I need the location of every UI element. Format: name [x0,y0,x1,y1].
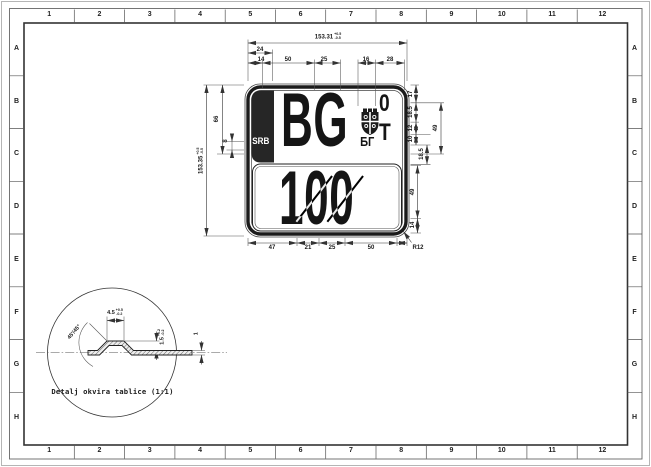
grid-col-label-bottom: 3 [142,447,158,454]
dim-bottom-47: 47 [264,245,280,251]
grid-col-label-bottom: 10 [494,447,510,454]
grid-row-label-right: B [627,98,643,105]
dim-overall-height-tolerance: +0.5-0.5 [197,148,205,155]
dim-right-18-5-a: 18.5 [408,104,414,120]
grid-col-label-top: 11 [544,11,560,18]
dim-right-14: 14 [410,219,416,231]
grid-col-label-top: 9 [443,11,459,18]
detail-view [36,288,227,417]
dim-top-25: 25 [316,57,332,63]
drawing-sheet: BG 100 0 T БГ SRB 153.31+0.5-0.5 24 14 5… [0,0,651,467]
grid-row-label-right: A [627,45,643,52]
detail-caption: Detalj okvira tablice (1:1) [32,387,193,396]
plate-serial-letter: T [379,124,391,142]
dim-left-8: 8 [223,136,229,146]
dim-flat-width-value: 4.5 [107,310,115,316]
dim-bottom-25: 25 [324,245,340,251]
grid-col-label-top: 3 [142,11,158,18]
dim-top-50: 50 [280,57,296,63]
dim-overall-height: 153.35+0.5-0.5 [197,144,205,178]
dim-bottom-21: 21 [300,245,316,251]
country-code-label: SRB [251,137,271,146]
grid-row-label-left: C [9,150,25,157]
grid-col-label-bottom: 7 [343,447,359,454]
dim-right-10: 10 [408,133,414,145]
dim-right-49-a: 49 [433,122,439,134]
tol-dn: -0.5 [334,37,341,41]
plate-code-letters: BG [281,93,348,149]
dim-flat-width-tolerance: +0.5-0.2 [116,309,123,317]
grid-row-label-left: G [9,361,25,368]
dim-top-16: 16 [358,57,374,63]
grid-col-label-top: 4 [192,11,208,18]
dim-top-24: 24 [252,47,268,53]
grid-row-label-left: A [9,45,25,52]
grid-col-label-bottom: 6 [293,447,309,454]
grid-row-label-left: B [9,98,25,105]
grid-col-label-top: 2 [91,11,107,18]
dim-overall-width-tolerance: +0.5-0.5 [334,33,341,41]
grid-col-label-top: 12 [594,11,610,18]
dim-overall-width-value: 153.31 [315,34,333,40]
tol-dn: -0.2 [162,329,166,336]
serbian-shield-icon [362,109,379,136]
grid-row-label-right: H [627,414,643,421]
grid-row-label-right: C [627,150,643,157]
dim-rib-height-tolerance: +0.2-0.2 [158,329,166,336]
radius-leader [404,232,412,243]
grid-row-label-right: D [627,203,643,210]
dim-top-14: 14 [253,57,269,63]
grid-col-label-top: 7 [343,11,359,18]
grid-col-label-bottom: 4 [192,447,208,454]
grid-row-label-right: F [627,309,643,316]
dim-right-49-b: 49 [410,186,416,198]
dim-overall-width: 153.31+0.5-0.5 [311,33,345,41]
grid-row-label-left: F [9,309,25,316]
grid-col-label-bottom: 8 [393,447,409,454]
dim-left-66: 66 [214,112,220,126]
dim-right-17: 17 [408,88,414,100]
grid-col-label-bottom: 12 [594,447,610,454]
dim-corner-radius: R12 [409,245,427,251]
plate-code-cyrillic: БГ [357,136,377,147]
grid-col-label-bottom: 5 [242,447,258,454]
dim-bottom-50: 50 [363,245,379,251]
dim-right-18-5-b: 18.5 [419,146,425,162]
grid-row-label-left: D [9,203,25,210]
dim-rib-height-value: 1.5 [159,337,165,345]
grid-row-label-left: H [9,414,25,421]
dim-detail-flat-width: 4.5+0.5-0.2 [102,309,128,317]
dim-detail-thickness: 1 [194,330,200,338]
dim-overall-height-value: 153.35 [199,156,205,174]
dim-top-28: 28 [382,57,398,63]
grid-col-label-top: 5 [242,11,258,18]
grid-col-label-bottom: 2 [91,447,107,454]
grid-col-label-top: 6 [293,11,309,18]
grid-col-label-bottom: 1 [41,447,57,454]
tol-dn: -0.2 [116,313,123,317]
dim-detail-rib-height: 1.5+0.2-0.2 [158,326,166,348]
grid-col-label-bottom: 11 [544,447,560,454]
grid-col-label-top: 1 [41,11,57,18]
grid-row-label-right: E [627,256,643,263]
grid-row-label-right: G [627,361,643,368]
plate-serial-digit: 0 [379,95,390,113]
grid-col-label-top: 8 [393,11,409,18]
srb-band [252,91,275,163]
grid-col-label-top: 10 [494,11,510,18]
tol-dn: -0.5 [201,148,205,155]
grid-col-label-bottom: 9 [443,447,459,454]
grid-row-label-left: E [9,256,25,263]
